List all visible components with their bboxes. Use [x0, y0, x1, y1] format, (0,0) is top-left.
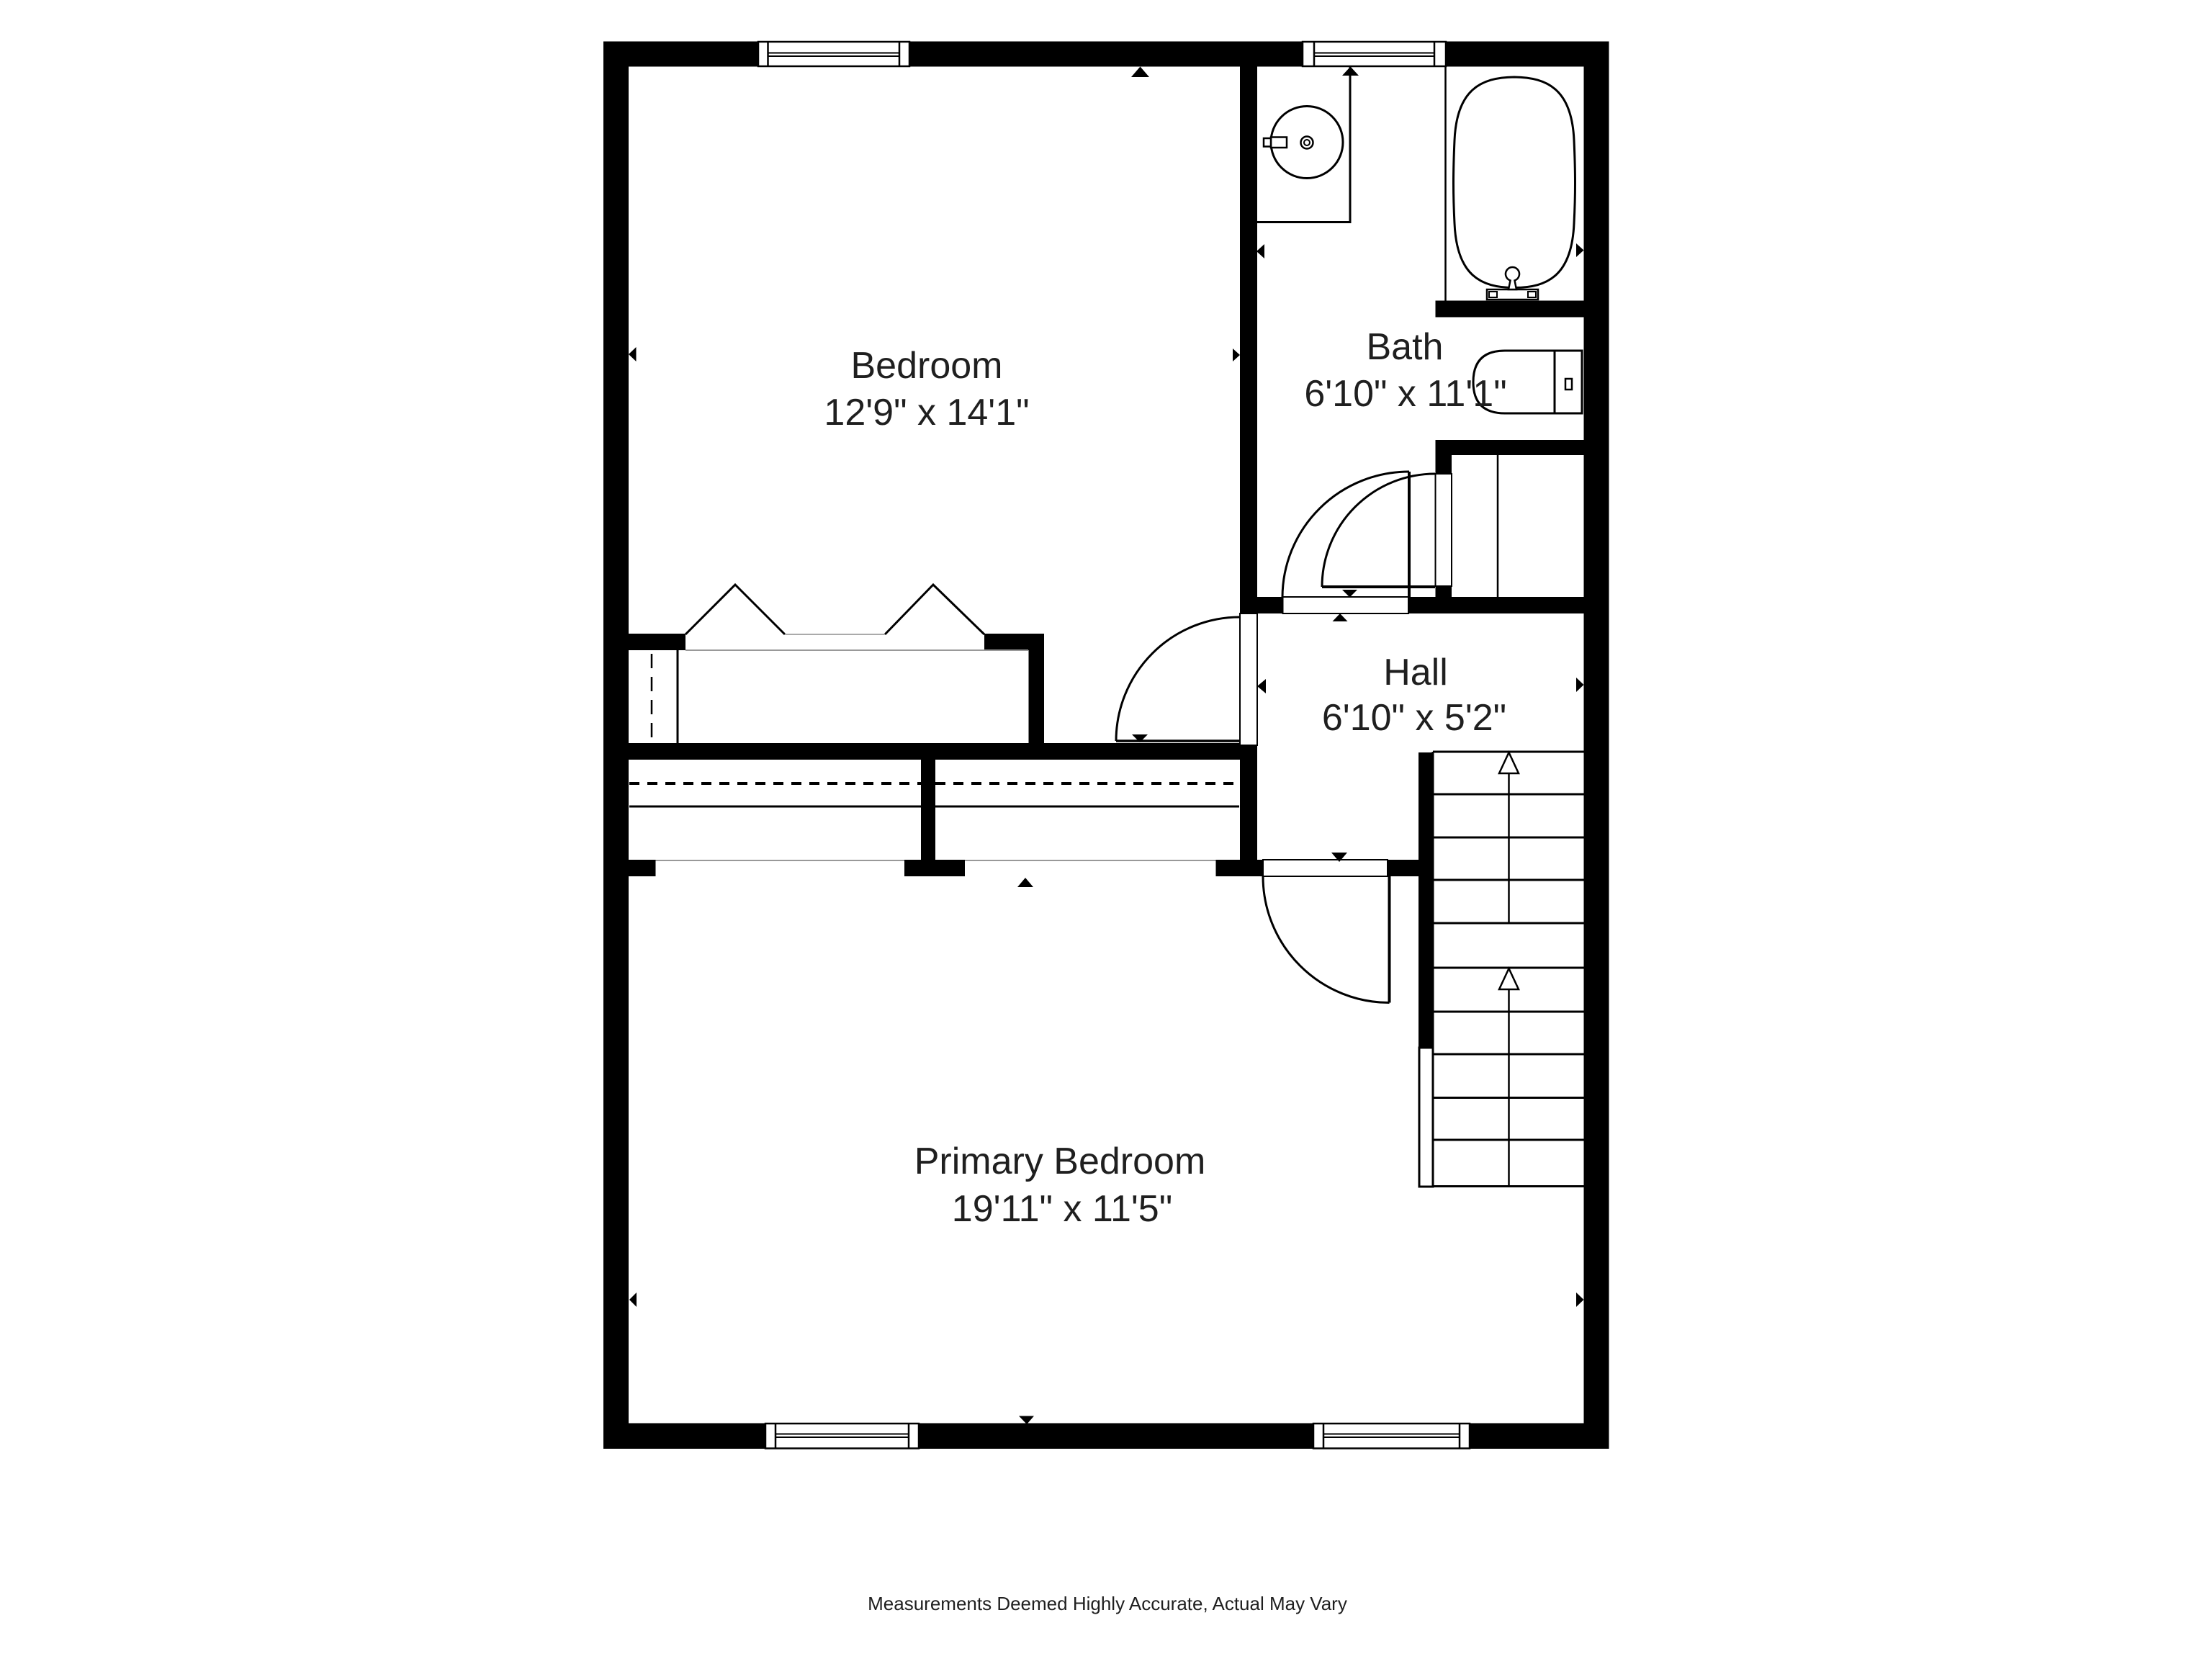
svg-text:Bath: Bath [1367, 326, 1444, 368]
svg-text:Measurements Deemed Highly Acc: Measurements Deemed Highly Accurate, Act… [868, 1593, 1347, 1614]
svg-text:Hall: Hall [1383, 652, 1448, 693]
svg-text:12'9" x 14'1": 12'9" x 14'1" [824, 392, 1029, 433]
svg-text:19'11" x 11'5": 19'11" x 11'5" [952, 1188, 1172, 1230]
svg-text:Primary Bedroom: Primary Bedroom [914, 1141, 1206, 1182]
svg-text:6'10" x 5'2": 6'10" x 5'2" [1322, 697, 1506, 739]
svg-text:6'10" x 11'1": 6'10" x 11'1" [1304, 373, 1506, 415]
svg-text:Bedroom: Bedroom [851, 345, 1003, 387]
